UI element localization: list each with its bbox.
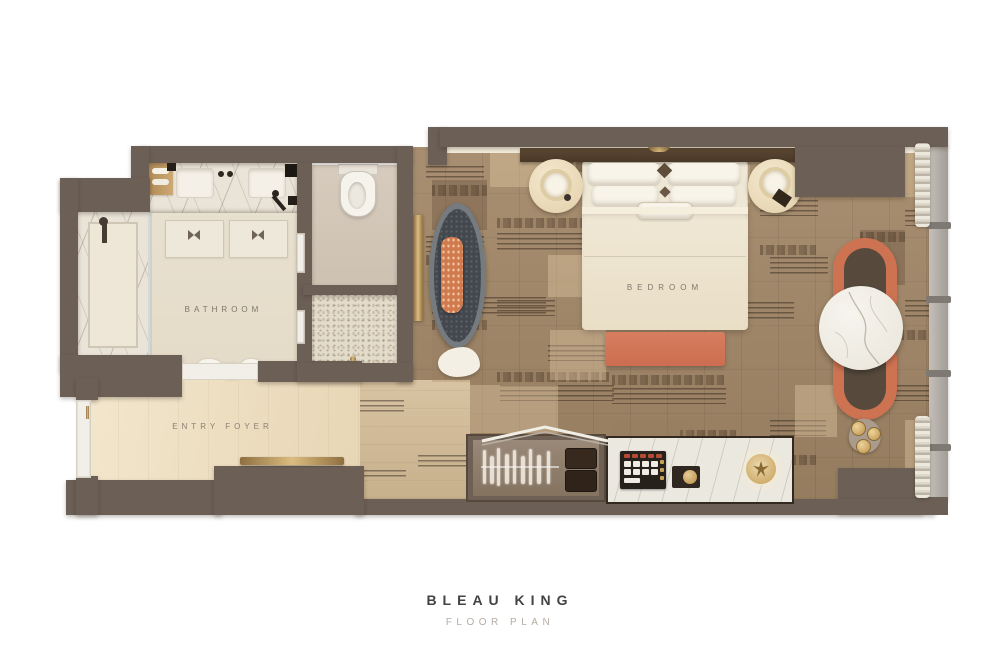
minibar-button-icon — [624, 469, 631, 475]
floor-texture — [905, 300, 929, 318]
curtain-bottom-right — [915, 416, 930, 498]
floor-texture — [760, 245, 816, 255]
luggage-rack-icon — [470, 420, 620, 446]
structural-column — [795, 147, 905, 197]
bathroom-door-threshold — [182, 363, 258, 380]
minibar-button-icon — [640, 454, 646, 458]
amenity-kit-small — [288, 196, 297, 205]
minibar-button-icon — [632, 454, 638, 458]
glassware-icon — [483, 450, 486, 484]
wall-bathroom-top — [138, 146, 412, 163]
pillow — [668, 163, 740, 185]
floor-texture — [550, 330, 606, 380]
wall-closet-bottom — [297, 363, 413, 382]
minibar-tray — [620, 451, 666, 489]
glassware-icon — [547, 451, 550, 484]
minibar-button-icon — [660, 460, 664, 464]
shower-head-icon — [99, 217, 108, 226]
wall-wc-closet-divider — [303, 285, 398, 295]
gold-table-lamp-icon — [746, 454, 776, 484]
sheet-fold — [582, 207, 748, 214]
faucet-icon — [227, 171, 233, 177]
minibar-console — [606, 436, 794, 504]
glassware-icon — [513, 450, 516, 484]
gold-flower-icon — [851, 421, 866, 436]
marble-veins — [819, 286, 903, 370]
floor-texture — [795, 385, 837, 437]
minibar-button-icon — [633, 461, 640, 467]
gold-flower-icon — [856, 439, 871, 454]
wall-entry-top — [76, 378, 98, 400]
minibar-button-icon — [633, 469, 640, 475]
hairdryer-head — [272, 190, 279, 197]
duvet — [582, 212, 748, 330]
serving-tray — [565, 448, 597, 469]
window-mullion-joint — [926, 370, 951, 377]
curtain-top-right — [915, 143, 930, 227]
minibar-button-icon — [642, 469, 649, 475]
wall-left-outer — [60, 178, 78, 372]
gold-disc-icon — [683, 470, 697, 484]
glassware-icon — [529, 449, 532, 485]
cup-icon — [564, 194, 571, 201]
floor-texture — [770, 257, 828, 275]
round-marble-table — [819, 286, 903, 370]
door-handle-icon — [86, 406, 89, 419]
serving-tray — [565, 470, 597, 492]
toilet-bowl — [348, 182, 366, 209]
pillow — [588, 163, 660, 185]
faucet-icon — [218, 171, 224, 177]
wall-entry-bottom — [76, 476, 98, 515]
wall-foyer-protrusion — [214, 466, 364, 515]
window-mullion-joint — [926, 296, 951, 303]
amenity-box-icon — [167, 163, 176, 171]
towel-bow-icon — [187, 230, 201, 240]
towel-bow-icon — [251, 230, 265, 240]
toilet — [340, 171, 376, 217]
glassware-icon — [521, 456, 525, 484]
flower-side-table — [845, 415, 885, 457]
minibar-button-icon — [648, 454, 654, 458]
gold-flower-icon — [867, 427, 881, 441]
glassware-icon — [505, 454, 509, 484]
shower-glass-partition — [148, 212, 152, 360]
floor-texture — [612, 375, 724, 385]
wall-bedroom-top — [440, 127, 948, 147]
entry-foyer-label: ENTRY FOYER — [130, 422, 315, 431]
floor-plan-image: BATHROOM ENTRY FOYER BEDROOM BLEAU KING … — [0, 0, 1000, 647]
floor-texture — [362, 470, 406, 480]
shower-tray — [88, 222, 138, 348]
floor-texture — [360, 400, 404, 412]
floor-mirror — [413, 215, 423, 321]
floor-texture — [418, 455, 466, 467]
plan-subtitle: FLOOR PLAN — [0, 617, 1000, 628]
glassware-icon — [537, 455, 541, 484]
minibar-button-icon — [656, 454, 662, 458]
bed-foot-bench — [605, 332, 725, 366]
floor-texture — [426, 166, 484, 180]
minibar-button-icon — [660, 476, 664, 480]
glassware-icon — [490, 456, 494, 484]
minibar-button-icon — [624, 478, 640, 483]
floor-texture — [612, 388, 726, 404]
bar-niche-interior — [473, 440, 599, 496]
entry-bench — [240, 457, 344, 465]
minibar-button-icon — [660, 468, 664, 472]
floor-texture — [497, 300, 555, 316]
pocket-door-closet — [296, 310, 305, 344]
cloud-pouf — [438, 347, 480, 377]
entry-door — [76, 400, 91, 478]
bedroom-label: BEDROOM — [595, 283, 735, 292]
minibar-button-icon — [624, 461, 631, 467]
wall-window-cap — [923, 497, 948, 515]
minibar-button-icon — [651, 469, 658, 475]
wall-block-right — [397, 146, 413, 382]
plan-title: BLEAU KING — [0, 592, 1000, 608]
lamp-trefoil-icon — [753, 461, 769, 477]
minibar-button-icon — [651, 461, 658, 467]
bolster-pillow — [441, 237, 463, 313]
hallway-floor — [355, 380, 470, 499]
rolled-towel — [152, 179, 169, 185]
closet-floor — [303, 293, 397, 365]
bathroom-label: BATHROOM — [150, 305, 297, 314]
minibar-button-icon — [624, 454, 630, 458]
duvet-seam — [584, 256, 746, 257]
accessory-box — [672, 466, 700, 488]
sink-right — [248, 168, 286, 198]
pocket-door-wc — [296, 233, 305, 273]
minibar-button-icon — [642, 461, 649, 467]
glassware-icon — [497, 448, 500, 486]
sink-left — [176, 168, 214, 198]
